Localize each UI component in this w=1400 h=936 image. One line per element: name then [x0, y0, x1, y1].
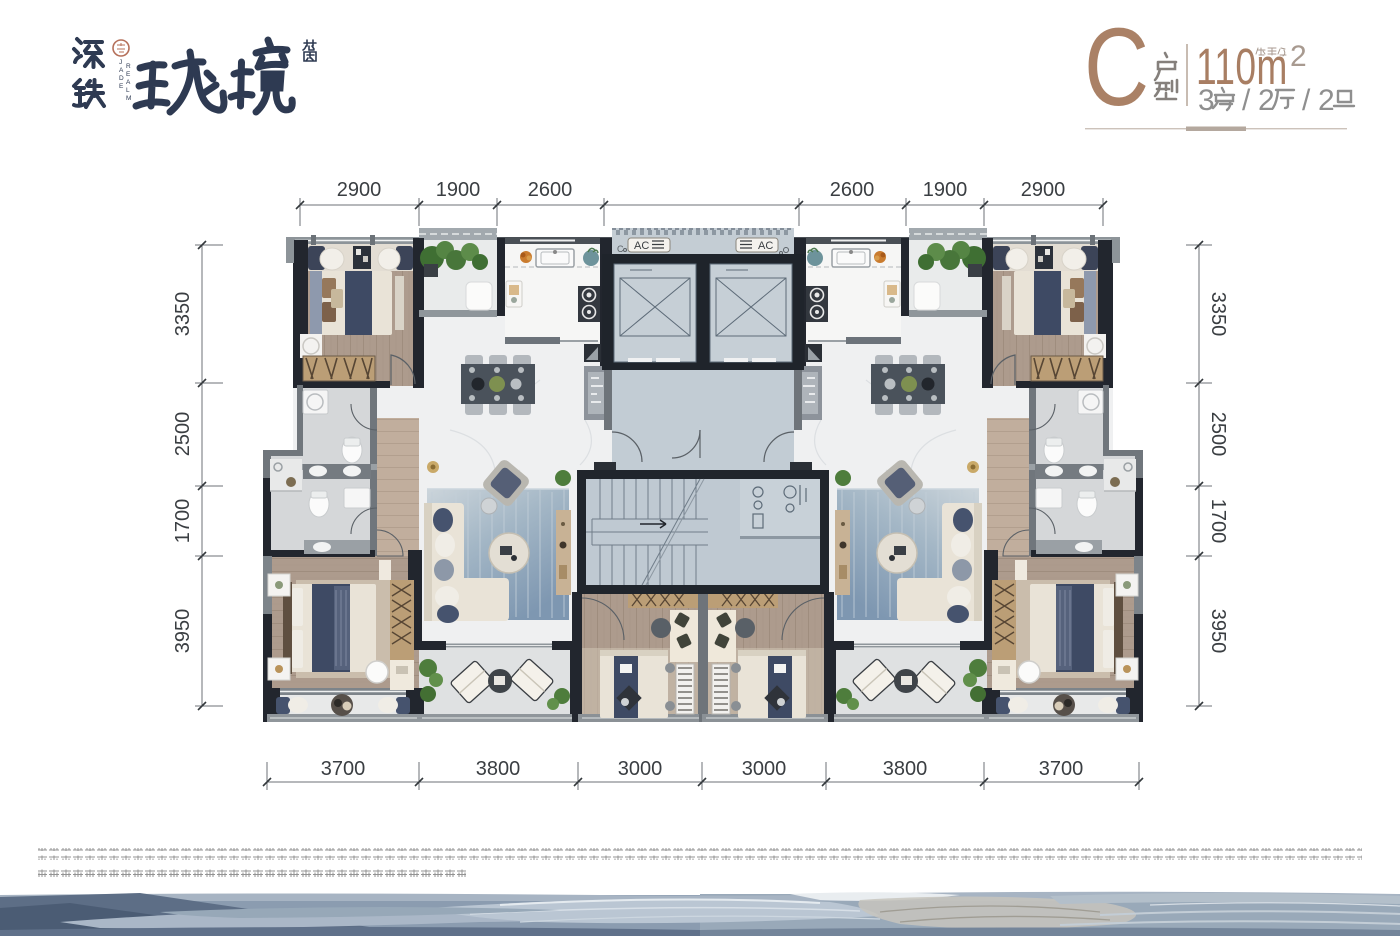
svg-text:AC: AC — [758, 240, 773, 252]
svg-text:2600: 2600 — [830, 179, 875, 201]
svg-text:2900: 2900 — [337, 179, 382, 201]
svg-text:2500: 2500 — [172, 412, 194, 457]
svg-text:E: E — [126, 71, 131, 78]
svg-text:3: 3 — [1198, 84, 1215, 117]
svg-text:C: C — [617, 244, 624, 254]
svg-text:1700: 1700 — [172, 499, 194, 544]
svg-text:2600: 2600 — [528, 179, 573, 201]
svg-text:3350: 3350 — [1207, 292, 1229, 337]
svg-text:J: J — [119, 59, 122, 66]
svg-text:3350: 3350 — [172, 292, 194, 337]
svg-text:L: L — [126, 87, 130, 94]
svg-text:AC: AC — [634, 240, 649, 252]
svg-text:3800: 3800 — [476, 758, 521, 780]
svg-text:3000: 3000 — [742, 758, 787, 780]
svg-text:2: 2 — [1290, 40, 1307, 73]
svg-text:3700: 3700 — [321, 758, 366, 780]
svg-text:R: R — [126, 63, 131, 70]
svg-text:1900: 1900 — [436, 179, 481, 201]
svg-text:2500: 2500 — [1207, 412, 1229, 457]
svg-text:D: D — [119, 75, 124, 82]
svg-text:/: / — [1302, 84, 1311, 117]
svg-text:A: A — [126, 79, 131, 86]
svg-text:E: E — [119, 83, 124, 90]
svg-text:C: C — [1084, 7, 1149, 129]
svg-text:A: A — [119, 67, 124, 74]
svg-text:2: 2 — [1318, 84, 1335, 117]
svg-text:2: 2 — [1258, 84, 1275, 117]
svg-text:3950: 3950 — [172, 609, 194, 654]
svg-text:1900: 1900 — [923, 179, 968, 201]
svg-text:/: / — [1242, 84, 1251, 117]
svg-text:2900: 2900 — [1021, 179, 1066, 201]
svg-text:3800: 3800 — [883, 758, 928, 780]
svg-text:M: M — [126, 95, 131, 102]
svg-text:1700: 1700 — [1207, 499, 1229, 544]
svg-text:3950: 3950 — [1207, 609, 1229, 654]
svg-text:3700: 3700 — [1039, 758, 1084, 780]
svg-text:3000: 3000 — [618, 758, 663, 780]
